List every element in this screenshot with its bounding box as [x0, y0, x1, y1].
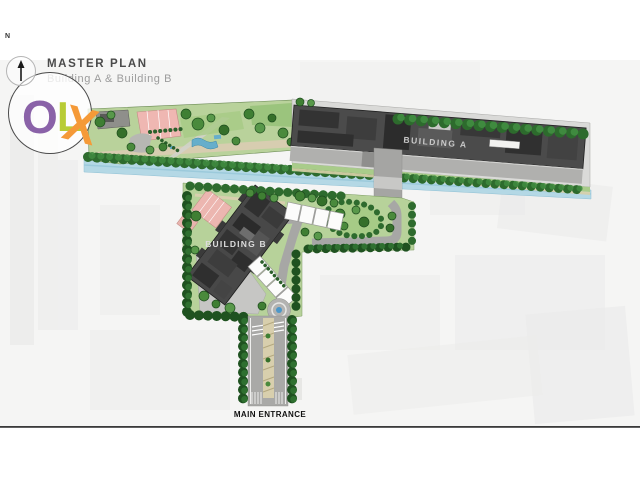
- road-edge-line: [250, 318, 251, 404]
- main-entrance-label: MAIN ENTRANCE: [234, 410, 307, 419]
- connector-road-surface: [374, 148, 402, 200]
- tree: [308, 100, 315, 107]
- canal-bridge: [374, 176, 402, 190]
- master-plan-page: BUILDING A: [0, 0, 640, 480]
- connector-road: [374, 148, 402, 200]
- median-tree: [266, 334, 271, 339]
- photo-blob: [320, 275, 440, 350]
- tree-row-southwest: [190, 315, 246, 317]
- median-tree: [266, 382, 271, 387]
- photo-blob: [90, 330, 230, 410]
- photo-blob: [525, 306, 634, 424]
- fountain: [276, 307, 282, 313]
- north-label: N: [5, 33, 10, 40]
- pond-segment: [214, 135, 221, 140]
- bottom-rule-line: [0, 426, 640, 428]
- photo-blob: [100, 205, 160, 315]
- north-arrow-icon: [7, 57, 35, 85]
- road-edge-line: [285, 318, 286, 404]
- tree-row-east-bottom: [308, 247, 410, 249]
- page-title: MASTER PLAN: [47, 58, 172, 70]
- north-arrow: [6, 56, 36, 86]
- photo-blob: [58, 160, 78, 330]
- tree: [296, 98, 304, 106]
- building-b-label: BUILDING B: [205, 239, 267, 249]
- median-tree: [266, 358, 271, 363]
